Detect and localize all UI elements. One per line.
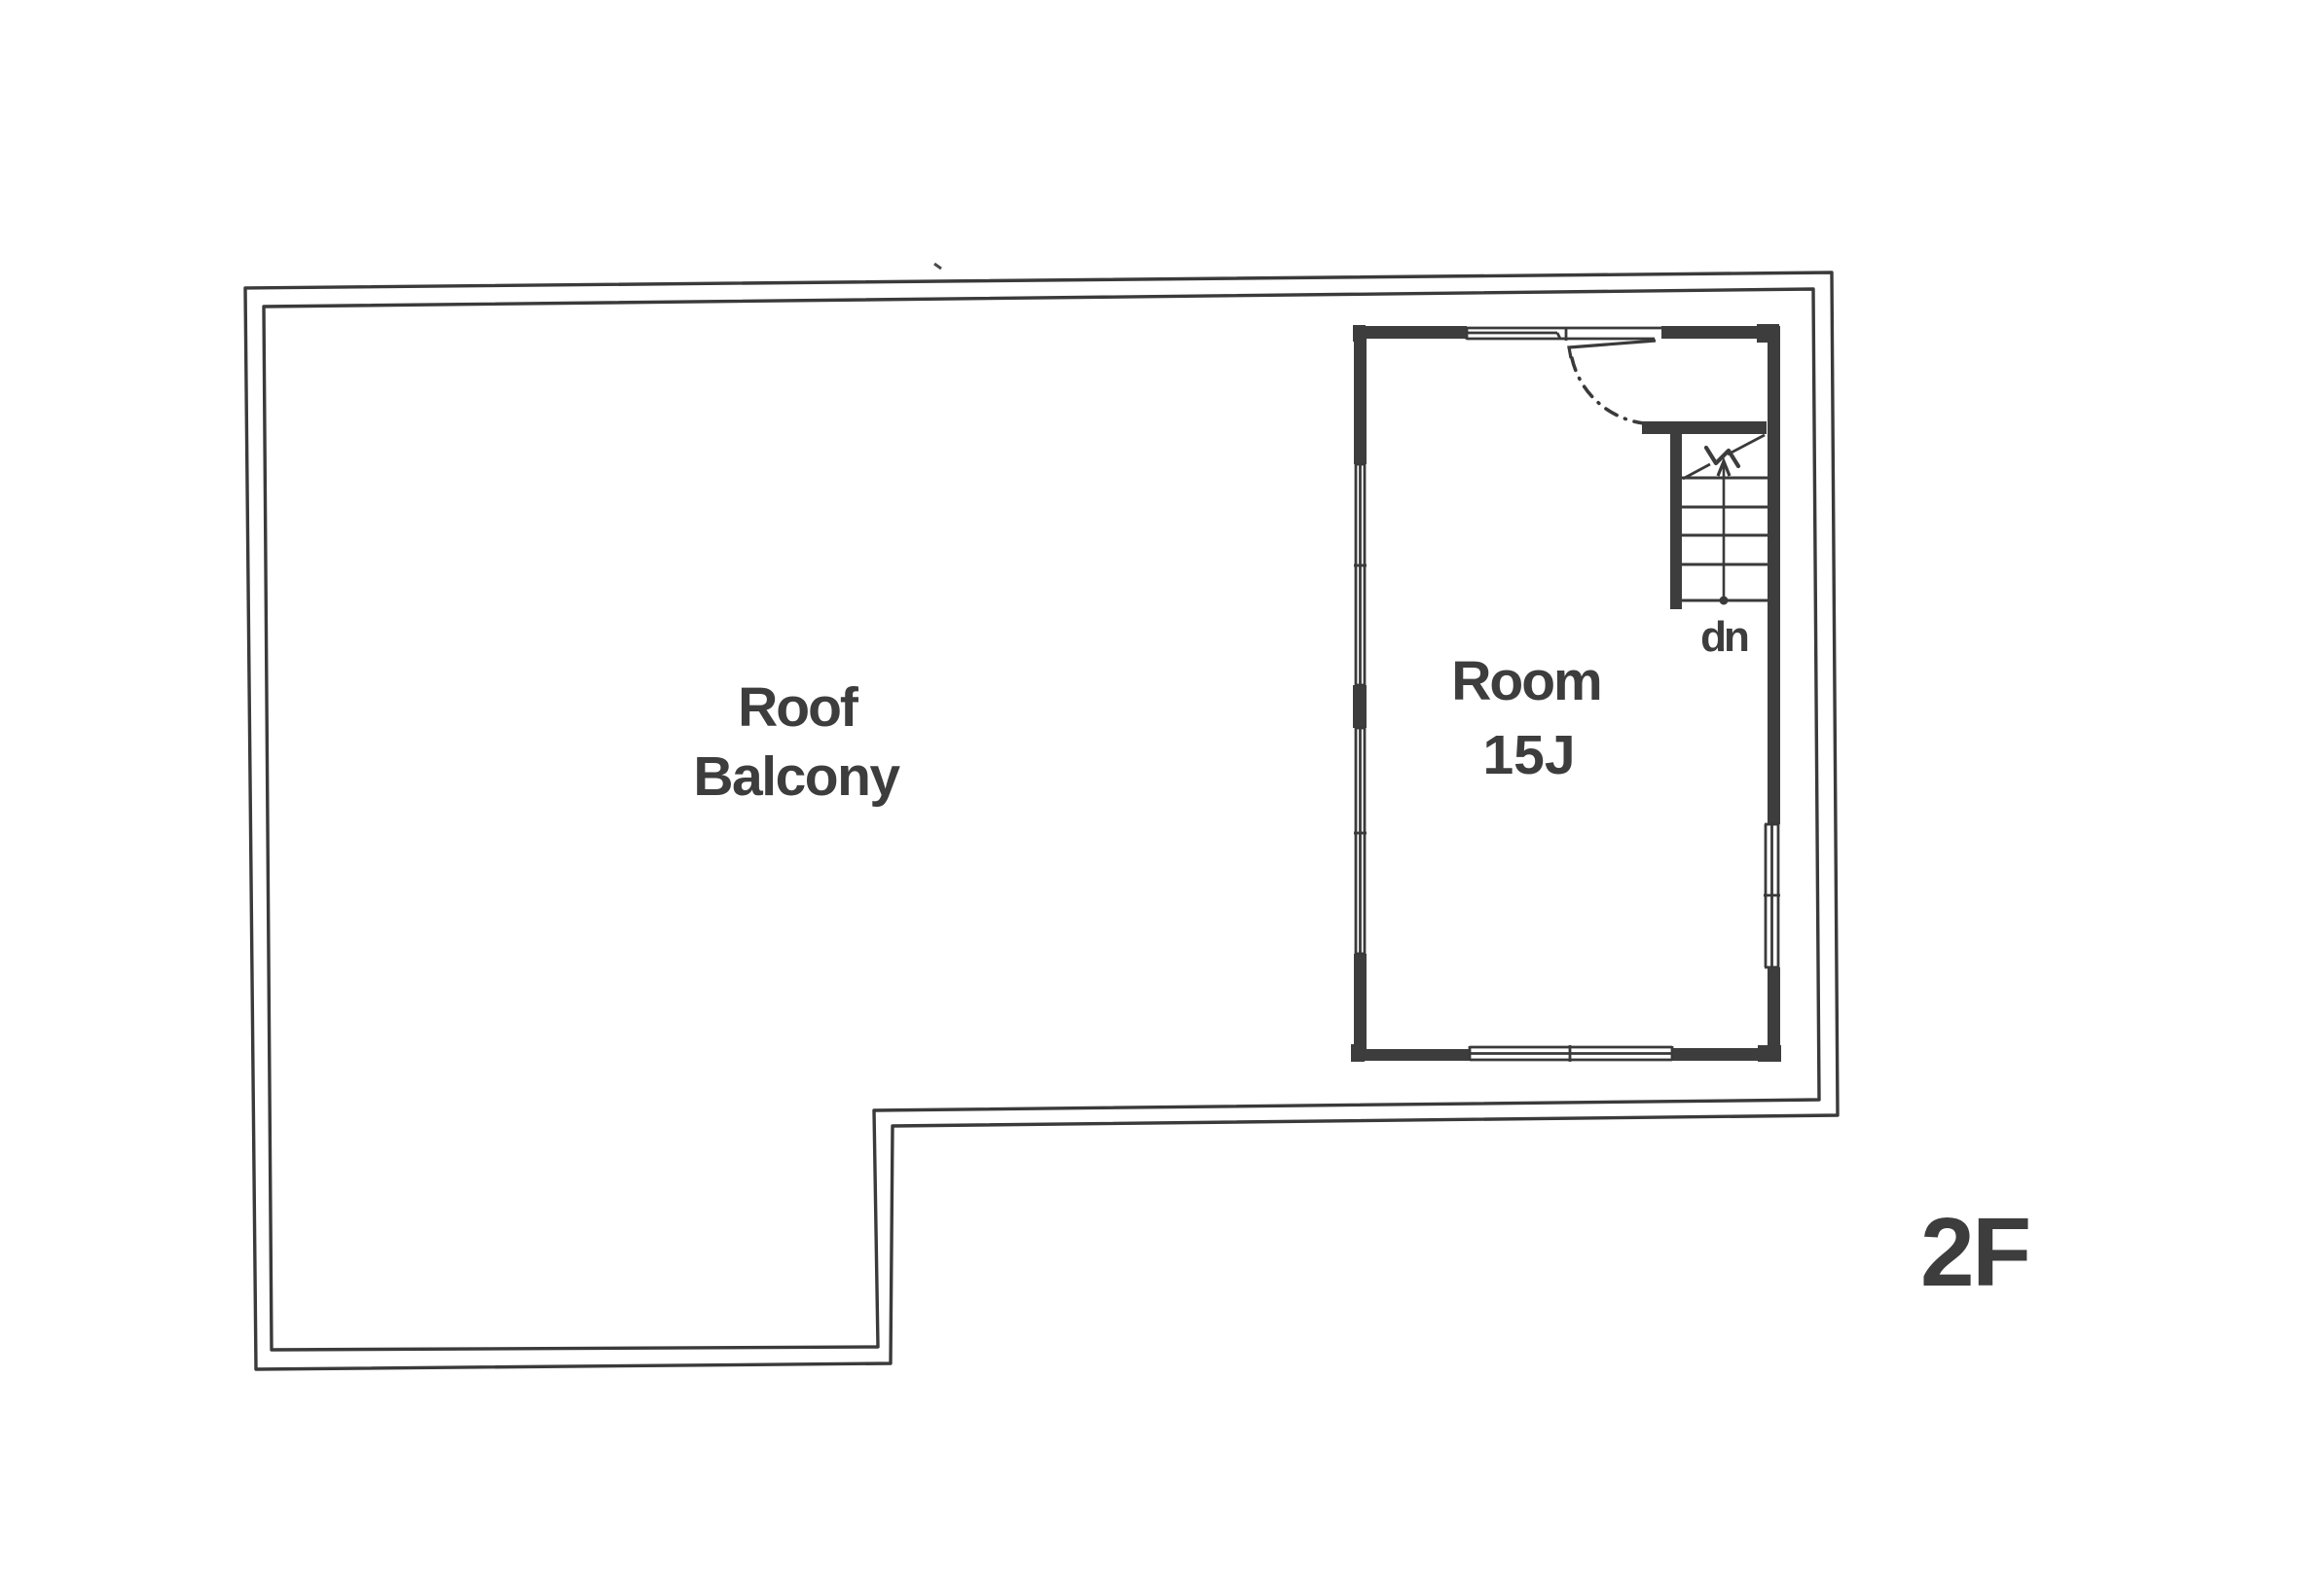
svg-text:2F: 2F — [1920, 1198, 2029, 1307]
svg-text:15J: 15J — [1482, 724, 1575, 786]
svg-text:Room: Room — [1451, 650, 1600, 712]
svg-text:Balcony: Balcony — [693, 745, 900, 808]
svg-text:dn: dn — [1700, 613, 1748, 661]
svg-text:Roof: Roof — [738, 676, 859, 739]
